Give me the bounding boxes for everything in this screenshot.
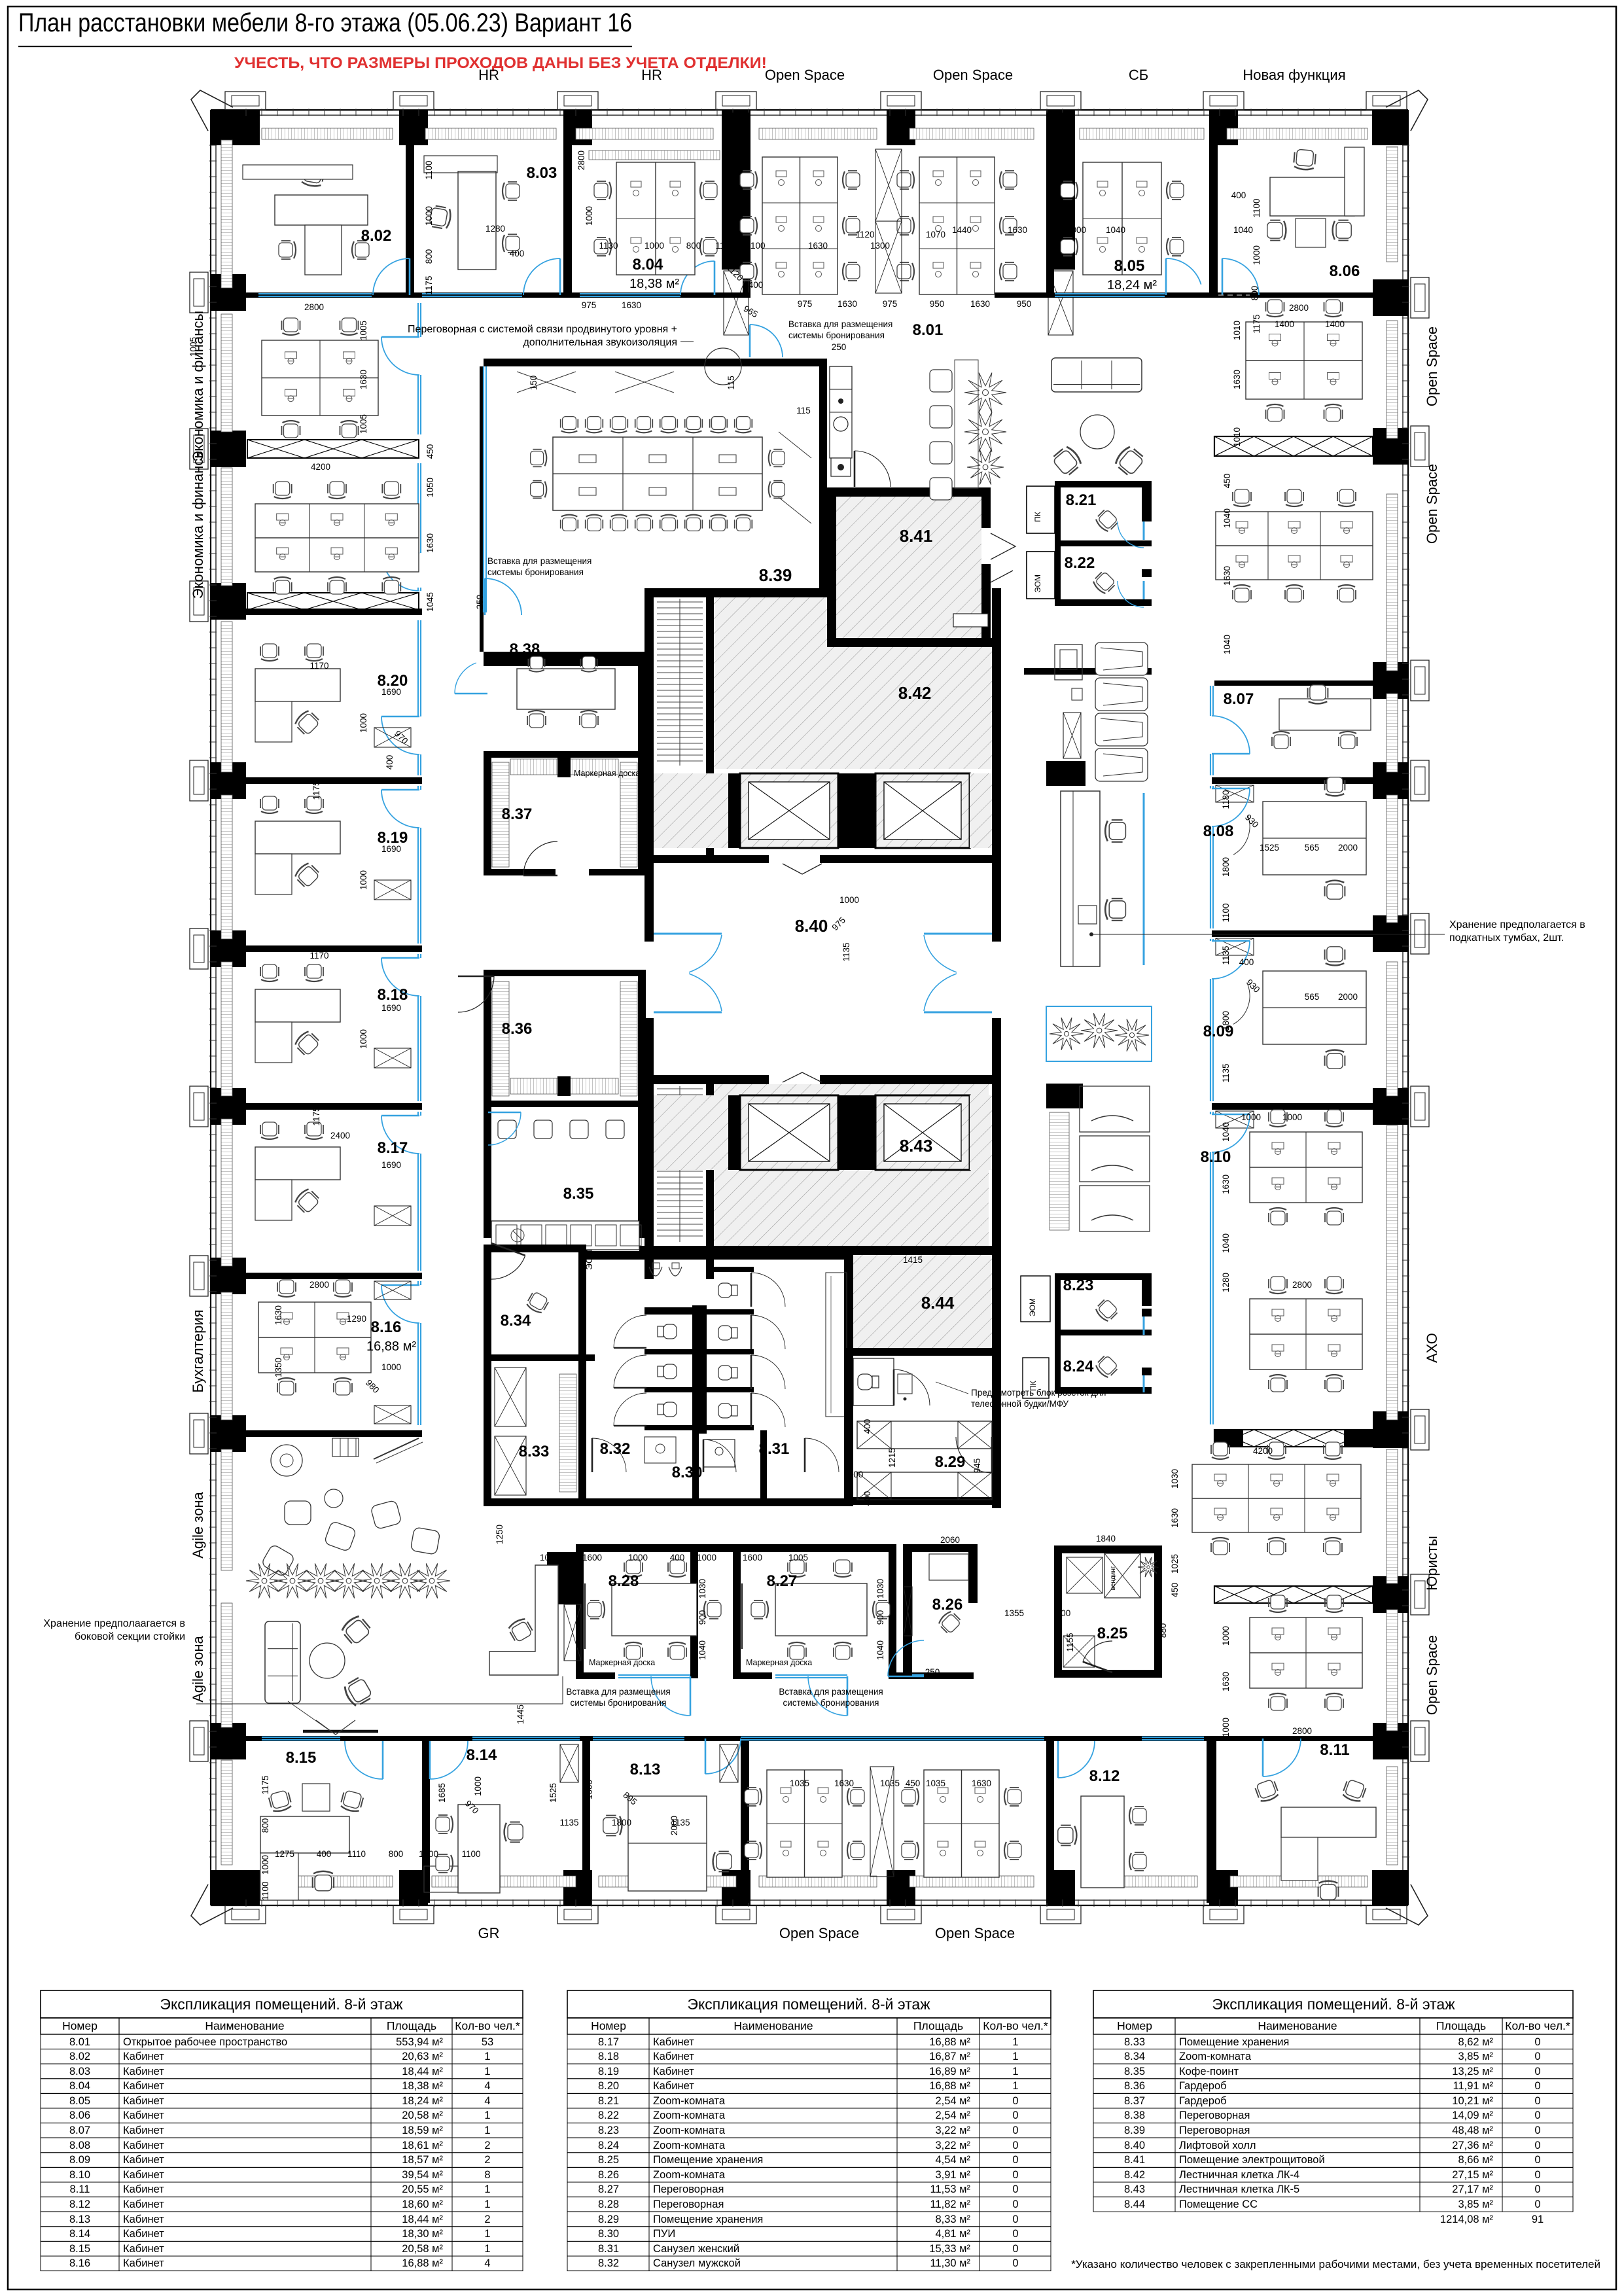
svg-text:975: 975: [883, 299, 898, 309]
svg-text:2000: 2000: [669, 1816, 679, 1835]
svg-text:Открытое рабочее пространство: Открытое рабочее пространство: [123, 2036, 287, 2048]
svg-text:Open Space: Open Space: [1424, 327, 1440, 406]
svg-text:1100: 1100: [461, 1849, 480, 1859]
svg-text:дополнительная звукоизоляция: дополнительная звукоизоляция: [523, 337, 677, 348]
svg-text:2,54 м²: 2,54 м²: [935, 2095, 970, 2107]
svg-text:400: 400: [670, 1553, 685, 1563]
svg-text:HR: HR: [641, 67, 662, 83]
svg-text:1525: 1525: [548, 1783, 558, 1803]
svg-text:0: 0: [1534, 2110, 1540, 2121]
svg-text:Кол-во чел.*: Кол-во чел.*: [983, 2019, 1048, 2032]
svg-text:Open Space: Open Space: [933, 67, 1013, 83]
svg-text:Zoom-комната: Zoom-комната: [653, 2140, 726, 2151]
svg-text:1050: 1050: [425, 478, 435, 497]
svg-text:1035: 1035: [880, 1778, 900, 1788]
svg-text:1110: 1110: [347, 1849, 366, 1859]
svg-text:Кабинет: Кабинет: [653, 2036, 694, 2048]
svg-text:1010: 1010: [1232, 427, 1242, 447]
svg-text:Zoom-комната: Zoom-комната: [653, 2125, 726, 2136]
svg-text:8.15: 8.15: [286, 1749, 317, 1767]
svg-text:системы бронирования: системы бронирования: [788, 330, 885, 340]
svg-text:1135: 1135: [1221, 1063, 1231, 1082]
svg-text:18,59 м²: 18,59 м²: [402, 2125, 443, 2136]
svg-text:975: 975: [582, 300, 597, 310]
svg-text:1000: 1000: [473, 1776, 483, 1796]
svg-text:400: 400: [385, 755, 395, 770]
svg-text:8.36: 8.36: [1124, 2080, 1145, 2092]
svg-text:800: 800: [389, 1849, 404, 1859]
svg-text:Кабинет: Кабинет: [653, 2051, 694, 2062]
svg-text:8.23: 8.23: [1063, 1277, 1094, 1294]
svg-text:8.32: 8.32: [600, 1440, 631, 1458]
svg-text:1: 1: [1012, 2036, 1018, 2048]
svg-text:*Указано количество человек с: *Указано количество человек с закрепленн…: [1071, 2258, 1600, 2270]
svg-text:115: 115: [726, 376, 736, 390]
svg-text:1040: 1040: [1221, 1233, 1231, 1253]
svg-text:Переговорная: Переговорная: [653, 2183, 724, 2195]
svg-text:системы бронирования: системы бронирования: [487, 567, 584, 577]
svg-text:1000: 1000: [1221, 1626, 1231, 1646]
svg-text:8.08: 8.08: [1203, 822, 1234, 840]
svg-text:Номер: Номер: [1117, 2019, 1152, 2032]
svg-text:Кабинет: Кабинет: [123, 2066, 164, 2077]
svg-text:Лестничная клетка ЛК-4: Лестничная клетка ЛК-4: [1179, 2169, 1299, 2181]
svg-text:Помещение хранения: Помещение хранения: [653, 2214, 763, 2225]
svg-text:1000: 1000: [260, 1855, 270, 1875]
svg-text:Санузел женский: Санузел женский: [653, 2243, 739, 2255]
svg-text:8.02: 8.02: [361, 227, 392, 245]
svg-text:Zoom-комната: Zoom-комната: [653, 2169, 726, 2181]
svg-text:8.16: 8.16: [69, 2257, 90, 2269]
svg-text:16,87 м²: 16,87 м²: [929, 2051, 970, 2062]
svg-text:1: 1: [1012, 2066, 1018, 2077]
svg-text:ЭОМ: ЭОМ: [1028, 1298, 1037, 1316]
svg-text:800: 800: [686, 241, 701, 251]
svg-text:1040: 1040: [1222, 508, 1232, 528]
svg-text:2400: 2400: [330, 1131, 350, 1140]
svg-text:20,55 м²: 20,55 м²: [402, 2183, 443, 2195]
svg-text:115: 115: [796, 406, 811, 415]
svg-text:450: 450: [906, 1778, 921, 1788]
svg-text:8.26: 8.26: [932, 1596, 963, 1614]
svg-text:2800: 2800: [1289, 303, 1309, 313]
svg-text:Санузел мужской: Санузел мужской: [653, 2257, 741, 2269]
svg-text:1290: 1290: [347, 1314, 366, 1324]
svg-text:20,58 м²: 20,58 м²: [402, 2243, 443, 2255]
svg-text:400: 400: [862, 1491, 872, 1506]
svg-text:8.06: 8.06: [1330, 262, 1360, 280]
svg-text:Кабинет: Кабинет: [123, 2154, 164, 2166]
svg-text:4,81 м²: 4,81 м²: [935, 2228, 970, 2240]
svg-text:1000: 1000: [359, 870, 368, 890]
svg-text:800: 800: [1250, 286, 1260, 301]
svg-text:39,54 м²: 39,54 м²: [402, 2169, 443, 2181]
svg-text:1000: 1000: [1067, 225, 1086, 235]
svg-text:8.41: 8.41: [900, 526, 933, 546]
svg-text:1525: 1525: [1260, 843, 1279, 853]
svg-text:1030: 1030: [875, 1579, 885, 1598]
svg-text:1000: 1000: [584, 1780, 594, 1799]
svg-text:1175: 1175: [311, 781, 321, 800]
svg-text:Номер: Номер: [62, 2019, 97, 2032]
svg-text:Маркерная доска: Маркерная доска: [589, 1658, 655, 1667]
svg-text:Гардероб: Гардероб: [1179, 2080, 1227, 2092]
svg-text:53: 53: [482, 2036, 493, 2048]
svg-text:0: 0: [1534, 2169, 1540, 2181]
svg-text:8.34: 8.34: [1124, 2051, 1145, 2062]
svg-text:250: 250: [832, 342, 847, 352]
svg-text:Переговорная: Переговорная: [1179, 2110, 1250, 2121]
svg-text:1630: 1630: [808, 241, 828, 251]
svg-text:8.06: 8.06: [69, 2110, 90, 2121]
svg-text:1000: 1000: [644, 241, 664, 251]
svg-text:Бухгалтерия: Бухгалтерия: [190, 1309, 206, 1392]
svg-text:1005: 1005: [359, 321, 368, 340]
svg-text:450: 450: [1222, 474, 1232, 489]
svg-text:18,44 м²: 18,44 м²: [402, 2214, 443, 2225]
svg-text:Лестничная клетка ЛК-5: Лестничная клетка ЛК-5: [1179, 2183, 1299, 2195]
svg-text:8.44: 8.44: [1124, 2199, 1145, 2210]
svg-text:8.42: 8.42: [898, 683, 932, 703]
svg-text:1415: 1415: [903, 1255, 923, 1265]
svg-text:Open Space: Open Space: [935, 1925, 1015, 1941]
svg-text:1630: 1630: [1221, 1672, 1231, 1691]
svg-text:2000: 2000: [1338, 843, 1358, 853]
svg-text:1025: 1025: [1170, 1554, 1180, 1574]
svg-text:1280: 1280: [485, 224, 505, 234]
svg-text:8.39: 8.39: [759, 565, 792, 585]
svg-text:Agile зона: Agile зона: [190, 1491, 206, 1558]
svg-text:16,88 м²: 16,88 м²: [366, 1339, 416, 1354]
svg-text:боковой секции стойки: боковой секции стойки: [75, 1631, 185, 1642]
svg-text:8.34: 8.34: [501, 1312, 531, 1330]
svg-text:8.16: 8.16: [371, 1318, 402, 1336]
svg-text:1800: 1800: [612, 1818, 631, 1828]
svg-text:565: 565: [1305, 992, 1320, 1002]
svg-text:10,21 м²: 10,21 м²: [1452, 2095, 1493, 2107]
svg-text:8.14: 8.14: [467, 1746, 497, 1764]
svg-text:16,89 м²: 16,89 м²: [929, 2066, 970, 2077]
svg-text:2,54 м²: 2,54 м²: [935, 2110, 970, 2121]
svg-text:1400: 1400: [1325, 319, 1345, 329]
svg-text:13,25 м²: 13,25 м²: [1452, 2066, 1493, 2077]
svg-text:1185: 1185: [715, 241, 734, 251]
svg-text:500: 500: [1056, 1608, 1071, 1618]
svg-text:8.12: 8.12: [1089, 1767, 1120, 1785]
svg-text:1630: 1630: [1222, 566, 1232, 586]
svg-text:1000: 1000: [359, 1029, 368, 1049]
svg-text:1: 1: [484, 2125, 490, 2136]
svg-text:1630: 1630: [274, 1305, 283, 1325]
svg-text:Помещение хранения: Помещение хранения: [1179, 2036, 1289, 2048]
svg-text:1: 1: [484, 2228, 490, 2240]
svg-text:0: 0: [1012, 2228, 1018, 2240]
svg-text:8.22: 8.22: [598, 2110, 619, 2121]
svg-text:Кабинет: Кабинет: [653, 2066, 694, 2077]
svg-text:1180: 1180: [1221, 790, 1231, 809]
svg-text:8.13: 8.13: [69, 2214, 90, 2225]
svg-text:8.03: 8.03: [69, 2066, 90, 2077]
svg-text:8.31: 8.31: [759, 1440, 790, 1458]
svg-text:2800: 2800: [1292, 1280, 1312, 1290]
svg-text:1: 1: [1012, 2080, 1018, 2092]
svg-text:Кабинет: Кабинет: [123, 2169, 164, 2181]
svg-text:8.17: 8.17: [598, 2036, 619, 2048]
svg-text:1100: 1100: [1252, 198, 1262, 217]
svg-text:1690: 1690: [381, 687, 401, 697]
svg-text:0: 0: [1534, 2125, 1540, 2136]
svg-text:1000: 1000: [1221, 1718, 1231, 1737]
svg-text:8.10: 8.10: [69, 2169, 90, 2181]
svg-text:18,24 м²: 18,24 м²: [1107, 278, 1157, 292]
svg-text:1135: 1135: [1221, 945, 1231, 964]
svg-text:0: 0: [1012, 2095, 1018, 2107]
svg-text:1: 1: [484, 2183, 490, 2195]
svg-text:Маркерная доска: Маркерная доска: [746, 1658, 812, 1667]
svg-text:553,94 м²: 553,94 м²: [396, 2036, 443, 2048]
svg-text:8.21: 8.21: [1066, 491, 1097, 509]
svg-text:1630: 1630: [1221, 1174, 1231, 1194]
svg-text:400: 400: [1239, 957, 1254, 967]
svg-text:Номер: Номер: [591, 2019, 626, 2032]
svg-text:Кабинет: Кабинет: [123, 2051, 164, 2062]
svg-text:8.43: 8.43: [900, 1136, 933, 1156]
svg-text:20,58 м²: 20,58 м²: [402, 2110, 443, 2121]
svg-text:18,24 м²: 18,24 м²: [402, 2095, 443, 2107]
svg-text:8.30: 8.30: [598, 2228, 619, 2240]
svg-text:2060: 2060: [940, 1535, 960, 1545]
svg-text:8.19: 8.19: [598, 2066, 619, 2077]
svg-text:0: 0: [1012, 2110, 1018, 2121]
svg-text:11,91 м²: 11,91 м²: [1453, 2080, 1494, 2092]
svg-text:1175: 1175: [424, 275, 434, 294]
svg-text:1630: 1630: [425, 533, 435, 553]
svg-text:0: 0: [1012, 2183, 1018, 2195]
svg-text:8.17: 8.17: [378, 1139, 408, 1157]
svg-text:1600: 1600: [582, 1553, 602, 1563]
svg-text:1630: 1630: [834, 1778, 854, 1788]
svg-text:0: 0: [1012, 2243, 1018, 2255]
svg-text:8.35: 8.35: [563, 1185, 594, 1203]
svg-text:900: 900: [697, 1610, 707, 1625]
svg-text:4: 4: [484, 2080, 490, 2092]
svg-text:8.32: 8.32: [598, 2257, 619, 2269]
svg-text:Экономика и финансы: Экономика и финансы: [190, 448, 206, 599]
svg-text:8,62 м²: 8,62 м²: [1458, 2036, 1493, 2048]
svg-text:8.07: 8.07: [69, 2125, 90, 2136]
svg-text:8.25: 8.25: [1097, 1625, 1128, 1642]
svg-text:1175: 1175: [260, 1775, 270, 1794]
svg-text:Кол-во чел.*: Кол-во чел.*: [455, 2019, 520, 2032]
svg-text:950: 950: [930, 299, 945, 309]
svg-text:0: 0: [1534, 2199, 1540, 2210]
svg-text:1: 1: [1012, 2051, 1018, 2062]
svg-text:1070: 1070: [926, 230, 945, 239]
svg-text:8.04: 8.04: [69, 2080, 90, 2092]
svg-text:Кабинет: Кабинет: [123, 2095, 164, 2107]
svg-text:1: 1: [484, 2066, 490, 2077]
svg-text:8.40: 8.40: [795, 916, 828, 936]
svg-text:1175: 1175: [311, 1106, 321, 1125]
svg-text:1690: 1690: [381, 1003, 401, 1013]
svg-text:ПК: ПК: [1033, 512, 1042, 522]
svg-text:565: 565: [1305, 843, 1320, 853]
svg-text:8.15: 8.15: [69, 2243, 90, 2255]
svg-text:1000: 1000: [628, 1553, 648, 1563]
svg-text:1040: 1040: [875, 1640, 885, 1660]
svg-text:4200: 4200: [311, 462, 330, 472]
svg-text:975: 975: [798, 299, 813, 309]
svg-text:ЭОМ: ЭОМ: [584, 1249, 594, 1269]
svg-text:8,66 м²: 8,66 м²: [1458, 2154, 1493, 2166]
svg-text:УЧЕСТЬ, ЧТО РАЗМЕРЫ ПРОХОДОВ Д: УЧЕСТЬ, ЧТО РАЗМЕРЫ ПРОХОДОВ ДАНЫ БЕЗ УЧ…: [234, 54, 767, 72]
svg-text:подкатных тумбах, 2шт.: подкатных тумбах, 2шт.: [1449, 932, 1564, 944]
svg-text:1135: 1135: [841, 942, 851, 961]
svg-text:8.11: 8.11: [70, 2183, 90, 2195]
svg-text:Лифтовой холл: Лифтовой холл: [1179, 2140, 1256, 2151]
svg-text:Open Space: Open Space: [1424, 1635, 1440, 1715]
svg-text:18,61 м²: 18,61 м²: [402, 2140, 443, 2151]
svg-text:400: 400: [849, 1470, 864, 1479]
svg-text:1030: 1030: [1170, 1469, 1180, 1489]
svg-text:4,54 м²: 4,54 м²: [935, 2154, 970, 2166]
svg-text:91: 91: [1532, 2214, 1544, 2225]
svg-text:8.25: 8.25: [598, 2154, 619, 2166]
svg-text:8.31: 8.31: [598, 2243, 619, 2255]
svg-text:8.23: 8.23: [598, 2125, 619, 2136]
svg-text:1000: 1000: [419, 1849, 438, 1859]
svg-text:Площадь: Площадь: [913, 2019, 963, 2032]
svg-text:4200: 4200: [1253, 1446, 1273, 1456]
svg-text:2800: 2800: [309, 1280, 329, 1290]
svg-text:Кабинет: Кабинет: [123, 2243, 164, 2255]
svg-text:1040: 1040: [1222, 635, 1232, 654]
svg-text:1: 1: [484, 2243, 490, 2255]
svg-text:Экспликация помещений. 8-й эта: Экспликация помещений. 8-й этаж: [687, 1996, 930, 2013]
svg-text:1000: 1000: [1252, 245, 1262, 265]
svg-text:8.12: 8.12: [69, 2199, 90, 2210]
svg-text:АХО: АХО: [1424, 1333, 1440, 1363]
svg-text:Кабинет: Кабинет: [123, 2125, 164, 2136]
svg-text:Кабинет: Кабинет: [653, 2080, 694, 2092]
svg-text:8.40: 8.40: [1124, 2140, 1145, 2151]
svg-text:Помещение хранения: Помещение хранения: [653, 2154, 763, 2166]
svg-text:8.09: 8.09: [69, 2154, 90, 2166]
svg-text:Хранение предполагается в: Хранение предполагается в: [1449, 919, 1585, 930]
svg-text:0: 0: [1534, 2036, 1540, 2048]
svg-text:8.18: 8.18: [378, 986, 408, 1004]
svg-text:20,63 м²: 20,63 м²: [402, 2051, 443, 2062]
svg-text:0: 0: [1012, 2154, 1018, 2166]
svg-text:8.22: 8.22: [1065, 554, 1095, 572]
svg-text:18,57 м²: 18,57 м²: [402, 2154, 443, 2166]
svg-text:1840: 1840: [1096, 1534, 1116, 1544]
svg-text:11,30 м²: 11,30 м²: [930, 2257, 971, 2269]
svg-text:8.27: 8.27: [598, 2183, 619, 2195]
svg-text:1005: 1005: [788, 1553, 808, 1563]
svg-text:1040: 1040: [1221, 1122, 1231, 1142]
svg-text:Вставка для размещения: Вставка для размещения: [566, 1687, 670, 1697]
svg-text:1630: 1630: [1008, 225, 1027, 235]
svg-text:телефонной будки/МФУ: телефонной будки/МФУ: [971, 1399, 1068, 1409]
svg-text:8.18: 8.18: [598, 2051, 619, 2062]
svg-text:8.03: 8.03: [527, 164, 557, 182]
svg-text:Помещение электрощитовой: Помещение электрощитовой: [1179, 2154, 1325, 2166]
svg-text:1685: 1685: [437, 1783, 447, 1803]
svg-text:8.24: 8.24: [1063, 1358, 1094, 1375]
svg-text:250: 250: [475, 595, 485, 610]
svg-text:11,82 м²: 11,82 м²: [930, 2199, 971, 2210]
svg-text:8.43: 8.43: [1124, 2183, 1145, 2195]
svg-text:1250: 1250: [495, 1525, 504, 1544]
svg-text:1: 1: [484, 2199, 490, 2210]
svg-text:2800: 2800: [576, 150, 586, 170]
svg-text:18,30 м²: 18,30 м²: [402, 2228, 443, 2240]
svg-text:Новая функция: Новая функция: [1243, 67, 1345, 83]
svg-text:16,88 м²: 16,88 м²: [402, 2257, 443, 2269]
svg-text:15,33 м²: 15,33 м²: [929, 2243, 970, 2255]
svg-text:27,17 м²: 27,17 м²: [1452, 2183, 1493, 2195]
svg-text:1280: 1280: [1221, 1273, 1231, 1292]
svg-text:Кол-во чел.*: Кол-во чел.*: [1505, 2019, 1570, 2032]
svg-text:0: 0: [1534, 2095, 1540, 2107]
svg-text:0: 0: [1534, 2154, 1540, 2166]
svg-text:1100: 1100: [1221, 903, 1231, 922]
svg-text:945: 945: [972, 1458, 982, 1474]
svg-text:1355: 1355: [1004, 1608, 1024, 1618]
svg-text:0: 0: [1534, 2183, 1540, 2195]
svg-text:8.21: 8.21: [598, 2095, 619, 2107]
svg-text:1175: 1175: [1252, 314, 1262, 333]
svg-text:18,44 м²: 18,44 м²: [402, 2066, 443, 2077]
svg-text:880: 880: [1158, 1623, 1168, 1638]
svg-text:1630: 1630: [622, 300, 641, 310]
svg-text:8.38: 8.38: [1124, 2110, 1145, 2121]
svg-text:системы бронирования: системы бронирования: [783, 1698, 879, 1708]
svg-text:1010: 1010: [1232, 321, 1242, 340]
svg-text:4: 4: [484, 2095, 490, 2107]
svg-text:2: 2: [484, 2214, 490, 2225]
svg-text:Экспликация помещений. 8-й эта: Экспликация помещений. 8-й этаж: [160, 1996, 403, 2013]
svg-text:1800: 1800: [1221, 1011, 1231, 1031]
svg-text:Гардероб: Гардероб: [1179, 2095, 1227, 2107]
svg-text:800: 800: [260, 1818, 270, 1833]
svg-text:8.13: 8.13: [630, 1761, 661, 1778]
svg-text:1000: 1000: [540, 1553, 559, 1563]
svg-text:Open Space: Open Space: [1424, 464, 1440, 544]
svg-text:8,33 м²: 8,33 м²: [935, 2214, 970, 2225]
svg-text:0: 0: [1534, 2080, 1540, 2092]
svg-text:Хранение предполаагается в: Хранение предполаагается в: [43, 1618, 185, 1629]
svg-text:8.29: 8.29: [935, 1453, 966, 1471]
svg-text:1630: 1630: [838, 299, 857, 309]
svg-text:900: 900: [875, 1610, 885, 1625]
svg-text:1600: 1600: [743, 1553, 762, 1563]
svg-text:1275: 1275: [275, 1849, 294, 1859]
svg-text:8.05: 8.05: [1114, 257, 1145, 275]
svg-text:1040: 1040: [1106, 225, 1125, 235]
svg-text:8.33: 8.33: [1124, 2036, 1145, 2048]
svg-text:Кабинет: Кабинет: [123, 2257, 164, 2269]
svg-text:0: 0: [1012, 2125, 1018, 2136]
svg-text:Площадь: Площадь: [1436, 2019, 1486, 2032]
svg-text:8.35: 8.35: [1124, 2066, 1145, 2077]
svg-text:1000: 1000: [697, 1553, 716, 1563]
svg-text:8.26: 8.26: [598, 2169, 619, 2181]
svg-text:8.41: 8.41: [1124, 2154, 1145, 2166]
svg-text:Наименование: Наименование: [733, 2019, 813, 2032]
svg-text:системы бронирования: системы бронирования: [571, 1698, 667, 1708]
